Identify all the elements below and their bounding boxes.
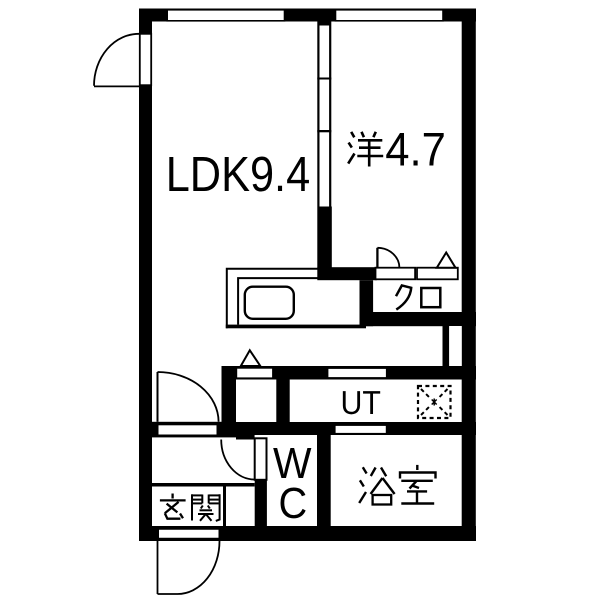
svg-text:4.7: 4.7 <box>385 123 446 176</box>
svg-text:UT: UT <box>341 385 381 422</box>
svg-text:C: C <box>278 479 307 528</box>
svg-text:LDK9.4: LDK9.4 <box>166 147 311 202</box>
